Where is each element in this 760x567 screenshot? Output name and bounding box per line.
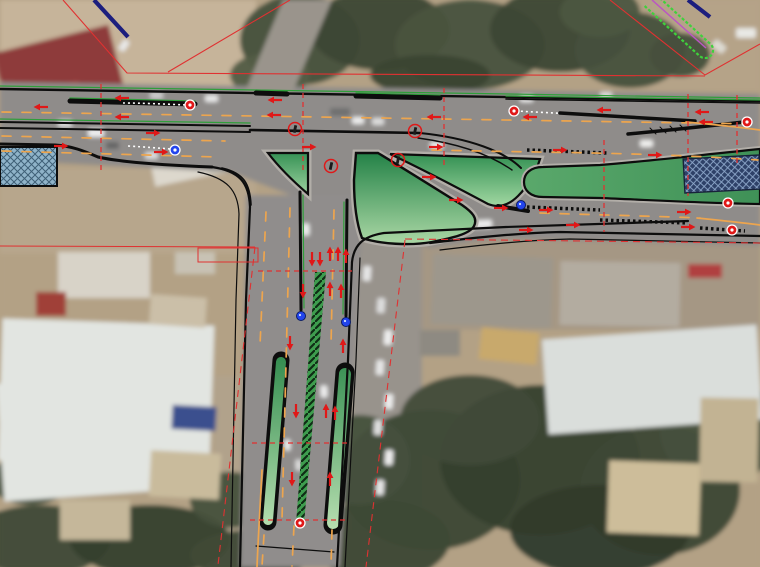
building-roof xyxy=(699,398,758,483)
vehicle xyxy=(150,92,163,99)
tree-patch xyxy=(400,375,540,465)
building-roof xyxy=(171,405,216,431)
vehicle xyxy=(375,480,384,496)
red-point-marker-icon xyxy=(295,518,305,528)
hatched-structure-in-median xyxy=(683,155,760,193)
plan-canvas xyxy=(0,0,760,567)
satellite-backdrop xyxy=(0,0,760,567)
red-point-marker-icon xyxy=(742,117,752,127)
plan-viewport[interactable] xyxy=(0,0,760,567)
building-roof xyxy=(688,264,722,278)
building-roof xyxy=(559,261,680,327)
vehicle xyxy=(362,266,371,282)
building-roof xyxy=(478,327,539,365)
vehicle xyxy=(375,360,384,376)
separator-bar-a xyxy=(70,101,195,104)
building-roof xyxy=(431,254,553,328)
vehicle xyxy=(640,140,653,147)
blue-node-icon xyxy=(342,318,351,327)
red-point-marker-icon xyxy=(509,106,519,116)
separator-bar-b xyxy=(256,93,287,94)
separator-bar-c xyxy=(356,96,440,98)
building-roof xyxy=(175,252,215,274)
vehicle xyxy=(736,28,756,38)
vehicle xyxy=(320,385,327,397)
building-roof xyxy=(36,292,66,316)
blue-node-icon xyxy=(297,312,306,321)
vehicle xyxy=(373,420,382,436)
vehicle xyxy=(376,298,385,314)
building-roof xyxy=(0,372,166,501)
vehicle xyxy=(106,142,119,149)
building-roof xyxy=(607,460,701,535)
red-point-marker-icon xyxy=(727,225,737,235)
blue-node-icon xyxy=(517,201,526,210)
vehicle xyxy=(205,95,218,102)
vehicle xyxy=(384,450,393,466)
red-point-marker-icon xyxy=(723,198,733,208)
red-point-marker-icon xyxy=(185,100,195,110)
vehicle xyxy=(330,108,350,116)
blue-point-marker-icon xyxy=(170,145,180,155)
building-roof xyxy=(60,500,130,540)
building-roof xyxy=(420,330,460,356)
building-roof xyxy=(149,450,221,500)
vehicle xyxy=(372,118,384,125)
building-roof xyxy=(58,252,150,298)
building-roof xyxy=(149,294,207,328)
vehicle xyxy=(383,330,392,346)
vehicle xyxy=(284,439,290,450)
